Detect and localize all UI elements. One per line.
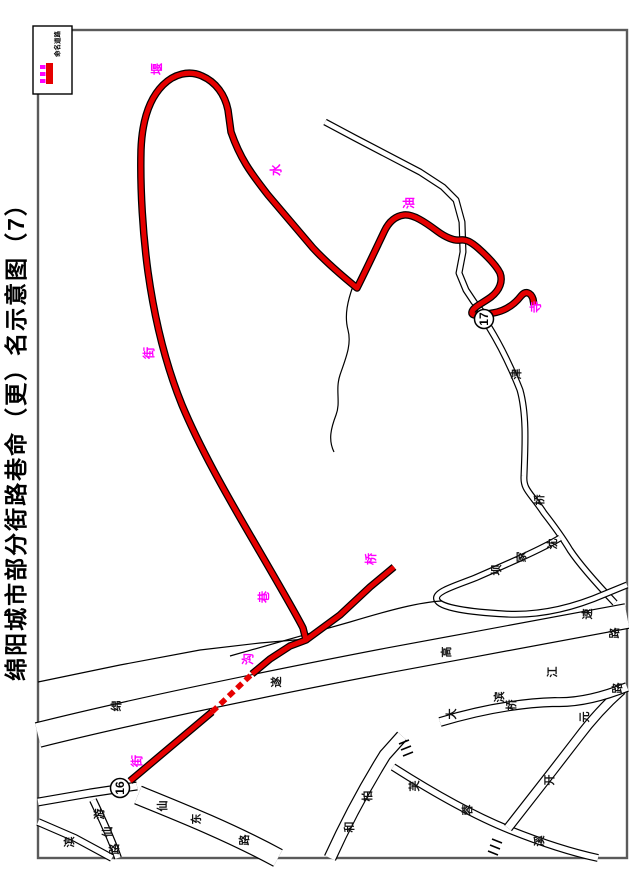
street-label: 滨 <box>492 692 506 703</box>
renamed-street-label: 街 <box>141 347 156 360</box>
map-svg: 绵遂高速路江滨大桥沈家坝津桥游仙路仙东路和柏芙蓉溪滨开元路堰水油寺街巷桥沟街 1… <box>0 0 629 891</box>
renamed-street-label: 油 <box>401 197 416 209</box>
street-label: 坝 <box>489 565 503 576</box>
street-label: 游 <box>92 809 106 820</box>
legend: 命名道路 <box>33 26 72 94</box>
renamed-street-label: 堰 <box>149 63 164 75</box>
street-label: 遂 <box>269 677 283 688</box>
street-label: 路 <box>610 682 624 694</box>
street-label: 芙 <box>407 780 421 793</box>
street-label: 柏 <box>360 791 374 802</box>
street-label: 桥 <box>532 494 546 506</box>
street-label: 和 <box>342 822 356 833</box>
map-background <box>0 0 629 891</box>
legend-magenta-tick <box>40 79 46 83</box>
street-label: 津 <box>509 369 523 380</box>
route-number: 17 <box>477 312 491 326</box>
renamed-street-label: 街 <box>129 755 144 768</box>
street-label: 绵 <box>109 701 123 712</box>
street-label: 桥 <box>504 699 518 711</box>
street-label: 滨 <box>62 837 76 848</box>
renamed-street-label: 桥 <box>363 552 378 565</box>
map-title: 绵阳城市部分街路巷命（更）名示意图（7） <box>3 191 29 681</box>
street-label: 大 <box>444 709 458 720</box>
street-label: 蓉 <box>460 804 474 816</box>
renamed-street-label: 寺 <box>528 301 543 313</box>
street-label: 高 <box>439 647 453 658</box>
street-label: 溪 <box>532 835 546 847</box>
legend-label: 命名道路 <box>53 31 62 59</box>
map-stage: 绵遂高速路江滨大桥沈家坝津桥游仙路仙东路和柏芙蓉溪滨开元路堰水油寺街巷桥沟街 1… <box>0 0 629 891</box>
street-label: 东 <box>189 814 203 825</box>
street-label: 路 <box>107 843 121 855</box>
street-label: 速 <box>580 609 594 620</box>
street-label: 仙 <box>155 801 169 812</box>
street-label: 元 <box>578 712 591 723</box>
legend-red-sample <box>46 63 53 84</box>
street-label: 江 <box>545 667 559 678</box>
street-label: 路 <box>607 627 621 639</box>
route-number: 16 <box>113 781 127 795</box>
street-label: 开 <box>543 775 556 786</box>
legend-magenta-tick <box>40 65 46 69</box>
renamed-street-label: 沟 <box>240 653 255 665</box>
street-label: 家 <box>514 551 528 563</box>
street-label: 仙 <box>100 827 114 838</box>
renamed-street-label: 水 <box>268 163 283 176</box>
street-label: 沈 <box>545 539 559 550</box>
legend-magenta-tick <box>40 72 46 76</box>
renamed-street-label: 巷 <box>256 590 271 604</box>
street-label: 路 <box>237 834 251 846</box>
